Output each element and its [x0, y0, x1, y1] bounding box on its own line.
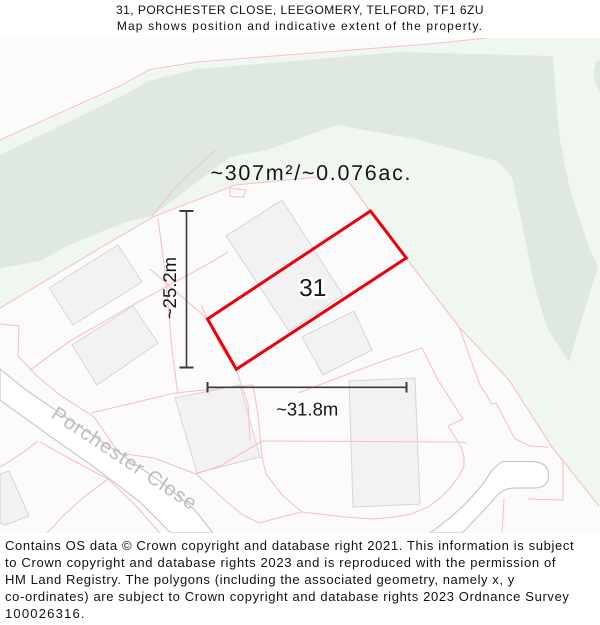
svg-text:~307m²/~0.076ac.: ~307m²/~0.076ac.: [211, 161, 413, 185]
svg-text:~31.8m: ~31.8m: [276, 399, 338, 420]
svg-text:31: 31: [299, 275, 326, 302]
svg-text:~25.2m: ~25.2m: [159, 257, 180, 319]
